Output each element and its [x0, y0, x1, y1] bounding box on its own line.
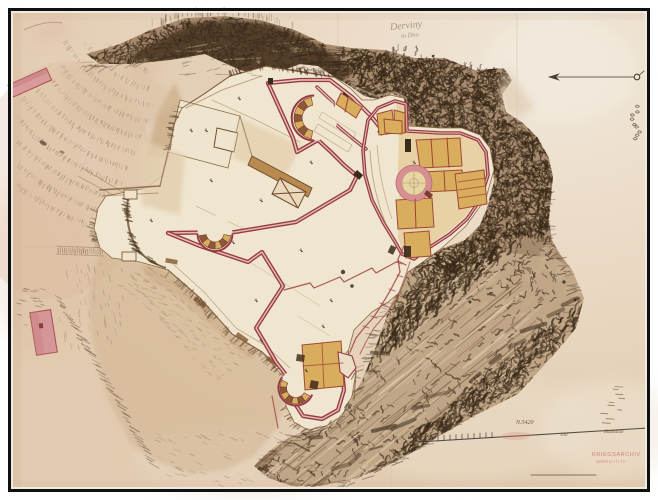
svg-text:KRIEGSARCHIV: KRIEGSARCHIV: [592, 452, 641, 458]
svg-text:N.5420: N.5420: [515, 419, 534, 426]
svg-text:100: 100: [560, 433, 568, 438]
svg-text:Maasstab: Maasstab: [603, 430, 624, 435]
svg-text:WIEN G I h 72: WIEN G I h 72: [596, 459, 626, 464]
